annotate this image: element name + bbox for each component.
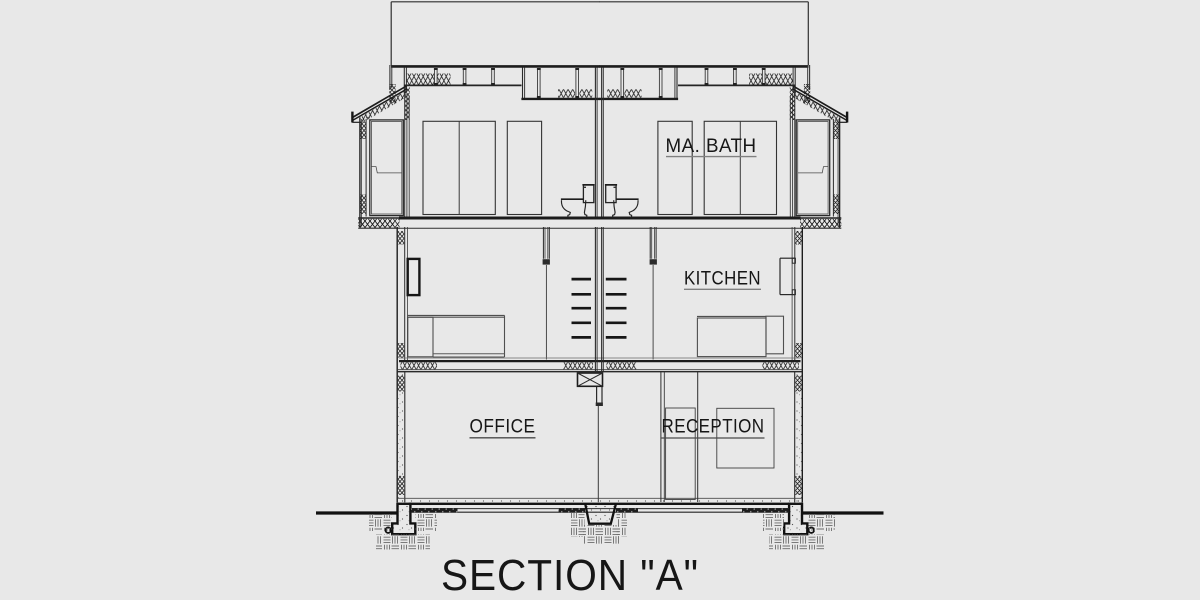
svg-text:RECEPTION: RECEPTION	[662, 416, 765, 438]
svg-text:MA. BATH: MA. BATH	[666, 135, 757, 157]
svg-text:SECTION "A": SECTION "A"	[441, 552, 699, 600]
svg-text:OFFICE: OFFICE	[470, 416, 536, 438]
svg-text:KITCHEN: KITCHEN	[684, 267, 761, 289]
